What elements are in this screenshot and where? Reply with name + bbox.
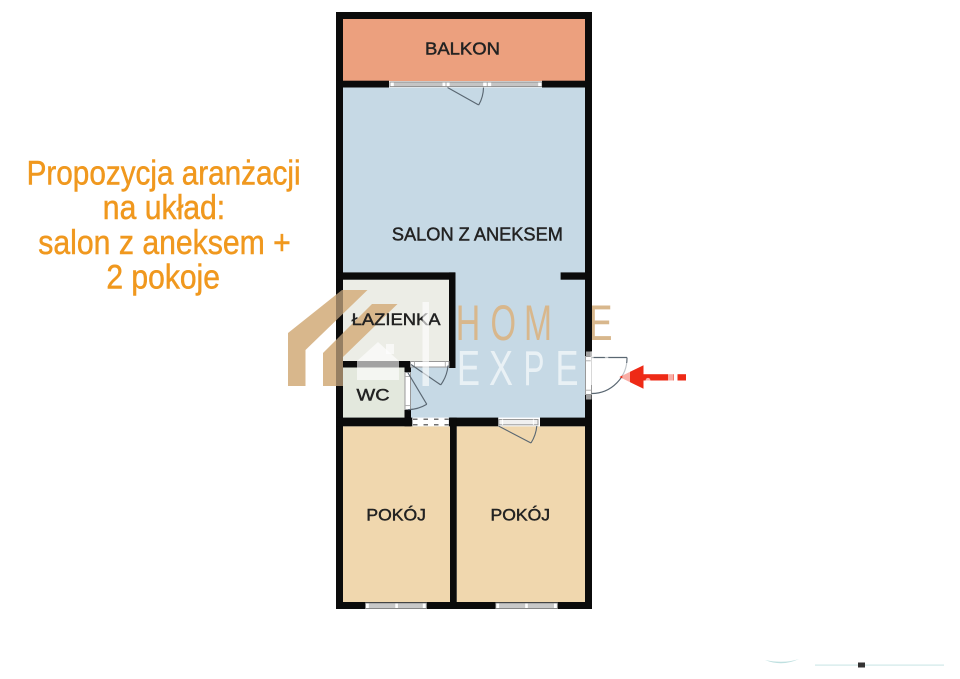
svg-text:SALON Z ANEKSEM: SALON Z ANEKSEM xyxy=(392,225,563,245)
svg-text:BALKON: BALKON xyxy=(425,39,500,59)
svg-text:salon z aneksem +: salon z aneksem + xyxy=(38,224,290,262)
svg-text:X: X xyxy=(489,342,513,396)
svg-text:R: R xyxy=(588,342,611,396)
svg-text:E: E xyxy=(556,342,579,396)
svg-text:2 pokoje: 2 pokoje xyxy=(106,258,219,296)
svg-text:P: P xyxy=(524,342,545,396)
svg-text:na układ:: na układ: xyxy=(103,189,225,227)
svg-text:WC: WC xyxy=(357,386,390,405)
svg-text:Propozycja aranżacji: Propozycja aranżacji xyxy=(27,155,301,193)
svg-text:POKÓJ: POKÓJ xyxy=(491,505,551,524)
svg-text:E: E xyxy=(457,342,480,396)
svg-text:POKÓJ: POKÓJ xyxy=(366,505,426,524)
